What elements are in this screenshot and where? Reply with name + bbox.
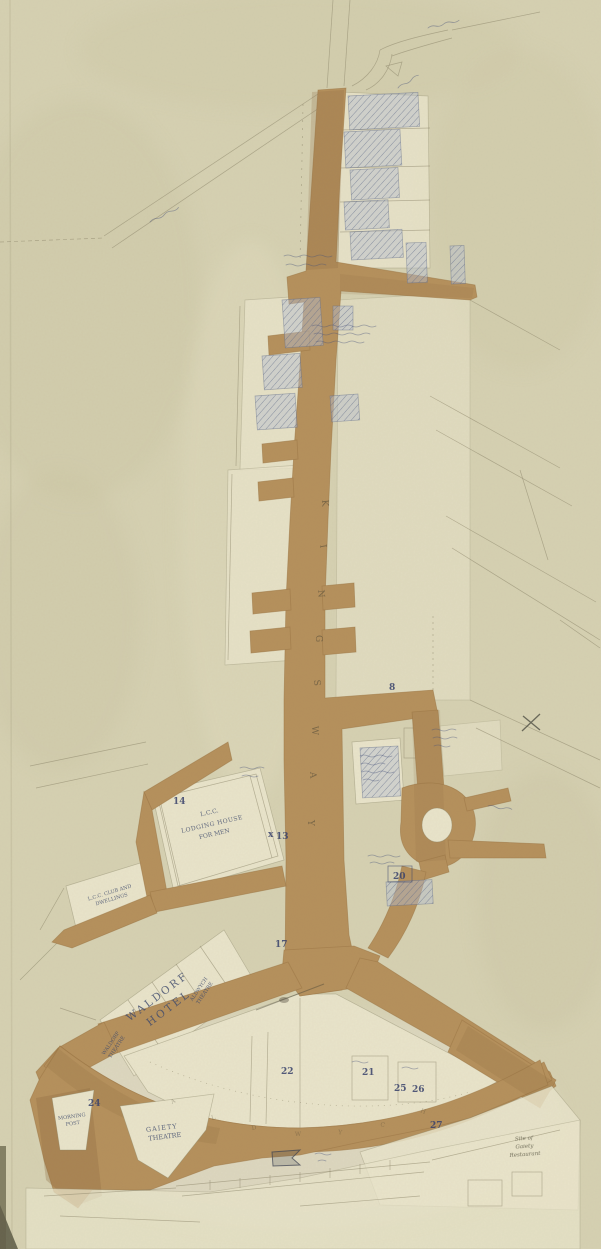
paper-grain: [0, 0, 601, 1249]
scanned-map: WALDORF HOTEL WALDORF THEATRE ALDWYCH TH…: [0, 0, 601, 1249]
map-svg: WALDORF HOTEL WALDORF THEATRE ALDWYCH TH…: [0, 0, 601, 1249]
